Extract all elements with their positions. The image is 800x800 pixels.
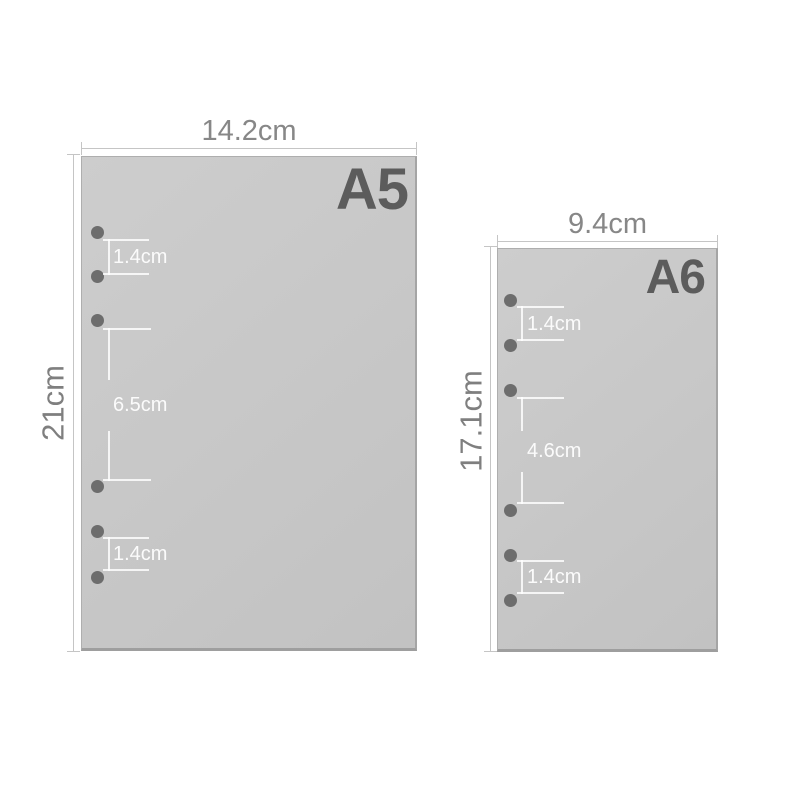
a6-width-tick-right [717,235,718,248]
paper-size-diagram: 14.2cm 21cm A5 1.4cm [0,0,800,800]
a5-hole-4 [91,480,104,493]
a5-height-dimension-line [73,154,74,652]
a6-measure-middle-connector-bottom [521,472,523,504]
a5-measure-middle-line-2 [103,479,151,481]
a6-measure-bottom: 1.4cm [517,560,564,594]
a5-hole-3 [91,314,104,327]
a6-size-label: A6 [646,254,705,302]
a5-width-dimension-line [81,148,417,149]
a6-measure-top-line-1 [517,306,564,308]
a5-measure-bottom-connector [108,537,110,571]
a5-width-tick-right [416,142,417,155]
a5-hole-6 [91,571,104,584]
a5-measure-top-connector [108,239,110,275]
a6-measure-top-label: 1.4cm [527,314,581,334]
a6-measure-middle-line-2 [517,502,564,504]
a5-size-label: A5 [336,161,408,219]
a6-width-tick-left [497,235,498,248]
a6-hole-5 [504,549,517,562]
a6-hole-4 [504,504,517,517]
a5-width-dimension: 14.2cm [81,142,417,155]
a6-measure-bottom-connector [521,560,523,594]
a6-measure-middle: 4.6cm [517,397,564,504]
a5-measure-top-label: 1.4cm [113,247,167,267]
a5-measure-top: 1.4cm [103,239,149,275]
a6-hole-6 [504,594,517,607]
a6-sheet: A6 1.4cm 4.6cm 1.4cm [497,248,718,652]
a6-measure-bottom-line-2 [517,592,564,594]
a5-measure-middle-line-1 [103,328,151,330]
a6-height-dimension-line [490,246,491,652]
a6-hole-3 [504,384,517,397]
a5-height-label: 21cm [38,365,69,441]
a5-height-dimension: 21cm [67,154,80,652]
a6-height-label: 17.1cm [456,370,487,472]
a5-width-label: 14.2cm [81,117,417,146]
a5-measure-middle: 6.5cm [103,328,151,481]
a5-measure-bottom: 1.4cm [103,537,149,571]
a6-measure-bottom-label: 1.4cm [527,567,581,587]
a6-measure-top-line-2 [517,339,564,341]
a6-height-tick-top [484,246,497,247]
a6-measure-middle-line-1 [517,397,564,399]
a5-hole-1 [91,226,104,239]
a6-height-dimension: 17.1cm [484,246,497,652]
a6-width-dimension-line [497,241,718,242]
a5-measure-middle-connector-bottom [108,431,110,481]
a6-measure-top-connector [521,306,523,341]
a6-measure-bottom-line-1 [517,560,564,562]
a6-measure-middle-connector-top [521,397,523,431]
a5-measure-middle-label: 6.5cm [113,395,167,415]
a5-measure-middle-connector-top [108,328,110,380]
a5-width-tick-left [81,142,82,155]
a5-sheet: A5 1.4cm 6.5cm 1.4cm [81,156,417,651]
a5-measure-bottom-label: 1.4cm [113,544,167,564]
a5-height-tick-bottom [67,651,80,652]
a6-width-dimension: 9.4cm [497,235,718,248]
a6-height-tick-bottom [484,651,497,652]
a5-height-tick-top [67,154,80,155]
a6-width-label: 9.4cm [497,210,718,239]
a6-measure-middle-label: 4.6cm [527,441,581,461]
a6-hole-2 [504,339,517,352]
a6-hole-1 [504,294,517,307]
a6-measure-top: 1.4cm [517,306,564,341]
